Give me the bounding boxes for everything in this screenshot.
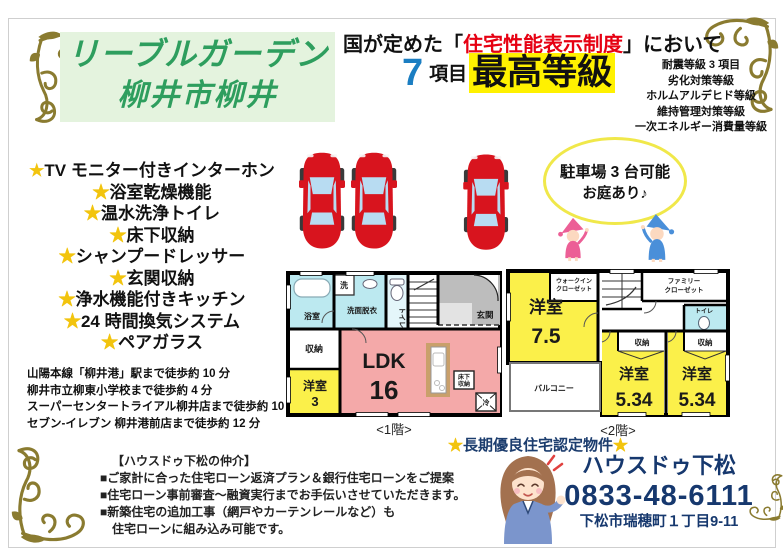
bedroom3-size: 3 <box>311 394 318 409</box>
bedroom534a-size: 5.34 <box>616 390 653 411</box>
feature-item: ★浄水機能付きキッチン <box>18 289 286 311</box>
ldk-name: LDK <box>362 350 405 373</box>
bracket-close: 」 <box>623 34 643 56</box>
star-icon: ★ <box>101 333 118 352</box>
car-icon <box>299 150 345 252</box>
bedroom534b-name: 洋室 <box>682 365 712 383</box>
washer-label: 洗 <box>340 280 348 290</box>
star-icon: ★ <box>84 204 101 223</box>
star-icon: ★ <box>110 269 127 288</box>
star-icon: ★ <box>93 183 110 202</box>
floorplan-1f: 浴室 洗 洗面脱衣 トイレ 玄関 収納 洋室 3 LDK 16 床下 収納 冷 <box>286 271 502 417</box>
feature-item-label: TV モニター付きインターホン <box>44 161 274 180</box>
feature-item: ★玄関収納 <box>18 268 286 290</box>
fridge-label: 冷 <box>483 398 490 407</box>
star-icon: ★ <box>29 161 44 180</box>
top-grade-highlight: 最高等級 <box>469 53 615 93</box>
grade-item: ホルムアルデヒド等級 <box>620 89 782 105</box>
entrance-label: 玄関 <box>476 310 493 320</box>
agency-bullet: ■新築住宅の追加工事（網戸やカーテンレールなど）も <box>100 504 500 521</box>
access-line: スーパーセンタートライアル柳井店まで徒歩約 10 分 <box>27 399 299 416</box>
feature-item-label: 浴室乾燥機能 <box>110 183 212 202</box>
agency-box: 【ハウスドゥ下松の仲介】 ■ご家計に合った住宅ローン返済プラン＆銀行住宅ローンを… <box>100 453 500 538</box>
feature-item: ★24 時間換気システム <box>18 311 286 333</box>
toilet-label: トイレ <box>398 307 406 328</box>
feature-item-label: 床下収納 <box>127 226 195 245</box>
property-title: リーブルガーデン 柳井市柳井 <box>60 32 335 122</box>
access-line: 山陽本線「柳井港」駅まで徒歩約 10 分 <box>27 366 299 383</box>
star-icon: ★ <box>59 247 76 266</box>
performance-grade-line: 7 項目 最高等級 <box>402 53 615 93</box>
feature-item-label: 温水洗浄トイレ <box>101 204 220 223</box>
walkin-closet-label1: ウォークイン <box>556 277 592 285</box>
parking-line2: お庭あり♪ <box>546 182 684 203</box>
bath-label: 浴室 <box>304 311 320 321</box>
feature-item-label: 浄水機能付きキッチン <box>76 290 246 309</box>
feature-item-label: 玄関収納 <box>127 269 195 288</box>
blue-elf-illustration <box>636 212 680 262</box>
closet-left-label: 収納 <box>635 337 650 347</box>
grade-count: 7 <box>402 53 423 93</box>
feature-item: ★ペアガラス <box>18 332 286 354</box>
access-line: 柳井市立柳東小学校まで徒歩約 4 分 <box>27 383 299 400</box>
feature-item: ★床下収納 <box>18 225 286 247</box>
floorplan-2f: 洋室 7.5 ウォークイン クローゼット ファミリー クローゼット トイレ 収納… <box>506 269 730 417</box>
feature-item: ★TV モニター付きインターホン <box>18 160 286 182</box>
access-info: 山陽本線「柳井港」駅まで徒歩約 10 分柳井市立柳東小学校まで徒歩約 4 分スー… <box>27 366 299 432</box>
bedroom534b-size: 5.34 <box>679 390 716 411</box>
storage-label: 収納 <box>305 343 323 354</box>
bedroom3-name: 洋室 <box>303 378 327 393</box>
agency-address: 下松市瑞穂町１丁目9-11 <box>551 512 767 532</box>
grade-item: 劣化対策等級 <box>620 74 782 90</box>
grade-unit: 項目 <box>429 60 467 90</box>
grade-item-list: 耐震等級 3 項目劣化対策等級ホルムアルデヒド等級維持管理対策等級一次エネルギー… <box>620 58 782 136</box>
ldk-size: 16 <box>370 375 399 405</box>
grade-item: 維持管理対策等級 <box>620 105 782 121</box>
feature-item: ★シャンプードレッサー <box>18 246 286 268</box>
toilet-2f-label: トイレ <box>695 308 713 315</box>
flyer-page: リーブルガーデン 柳井市柳井 国が定めた「住宅性能表示制度」において 7 項目 … <box>0 0 783 553</box>
bedroom75-name: 洋室 <box>529 297 563 317</box>
feature-item-label: ペアガラス <box>118 333 203 352</box>
access-line: セブン-イレブン 柳井港前店まで徒歩約 12 分 <box>27 416 299 433</box>
car-icon <box>463 153 509 252</box>
grade-item: 一次エネルギー消費量等級 <box>620 120 782 136</box>
contact-block: ハウスドゥ下松 0833-48-6111 下松市瑞穂町１丁目9-11 <box>551 452 767 532</box>
family-closet-label1: ファミリー <box>668 277 701 285</box>
agency-title: 【ハウスドゥ下松の仲介】 <box>112 453 500 470</box>
star-icon: ★ <box>448 437 463 454</box>
feature-item-label: シャンプードレッサー <box>76 247 246 266</box>
parking-line1: 駐車場 3 台可能 <box>546 160 684 182</box>
agency-bullet: 住宅ローンに組み込み可能です。 <box>100 521 500 538</box>
balcony-label: バルコニー <box>534 384 574 393</box>
underfloor-storage-label1: 床下 <box>458 373 470 381</box>
star-icon: ★ <box>64 312 81 331</box>
bedroom534a-name: 洋室 <box>619 365 649 383</box>
feature-item-label: 24 時間換気システム <box>81 312 240 331</box>
closet-right-label: 収納 <box>698 337 713 347</box>
underfloor-storage-label2: 収納 <box>458 380 470 388</box>
headline-suffix: において <box>643 34 722 56</box>
agency-bullet: ■住宅ローン事前審査～融資実行までお手伝いさせていただきます。 <box>100 487 500 504</box>
grade-item: 耐震等級 3 項目 <box>620 58 782 74</box>
pink-elf-illustration <box>552 216 594 262</box>
property-title-line2: 柳井市柳井 <box>60 76 335 116</box>
washroom-label: 洗面脱衣 <box>347 305 377 315</box>
agency-bullets: ■ご家計に合った住宅ローン返済プラン＆銀行住宅ローンをご提案■住宅ローン事前審査… <box>100 470 500 538</box>
feature-item: ★温水洗浄トイレ <box>18 203 286 225</box>
star-icon: ★ <box>59 290 76 309</box>
car-icon <box>351 150 397 252</box>
agency-bullet: ■ご家計に合った住宅ローン返済プラン＆銀行住宅ローンをご提案 <box>100 470 500 487</box>
walkin-closet-label2: クローゼット <box>556 285 592 293</box>
star-icon: ★ <box>110 226 127 245</box>
property-title-line1: リーブルガーデン <box>60 32 335 76</box>
feature-item: ★浴室乾燥機能 <box>18 182 286 204</box>
bedroom75-size: 7.5 <box>531 325 561 348</box>
agency-name: ハウスドゥ下松 <box>551 452 767 480</box>
family-closet-label2: クローゼット <box>665 285 704 294</box>
features-list: ★TV モニター付きインターホン★浴室乾燥機能★温水洗浄トイレ★床下収納★シャン… <box>18 160 286 354</box>
phone-number: 0833-48-6111 <box>551 480 767 512</box>
